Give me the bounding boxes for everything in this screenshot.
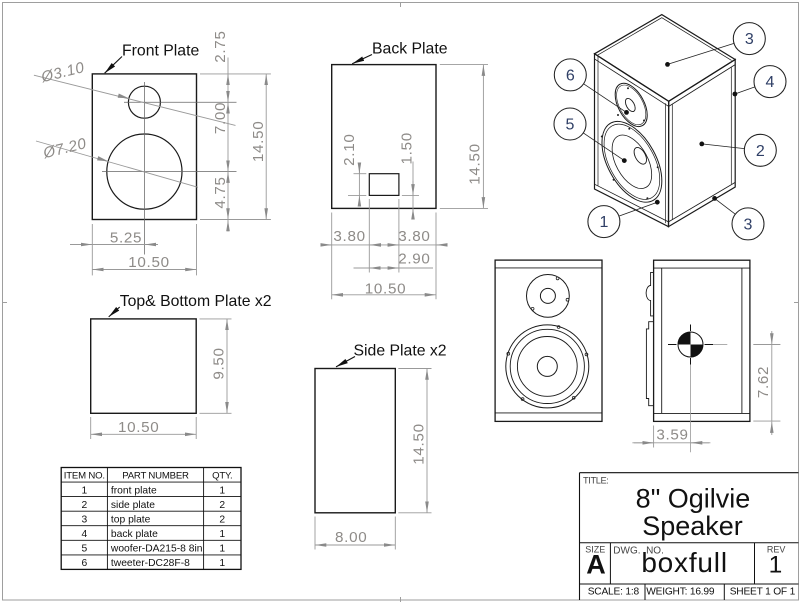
svg-text:9.50: 9.50 (210, 347, 227, 379)
svg-text:1: 1 (769, 552, 783, 579)
svg-text:1: 1 (219, 485, 225, 496)
svg-text:14.50: 14.50 (410, 423, 427, 465)
svg-text:3: 3 (744, 217, 753, 234)
svg-text:WEIGHT: 16.99: WEIGHT: 16.99 (646, 587, 715, 598)
svg-text:SHEET 1 OF 1: SHEET 1 OF 1 (730, 587, 796, 598)
svg-text:Speaker: Speaker (642, 511, 743, 541)
svg-text:14.50: 14.50 (250, 121, 267, 163)
svg-text:6: 6 (566, 68, 575, 85)
svg-text:PART NUMBER: PART NUMBER (122, 471, 189, 482)
svg-text:5.25: 5.25 (110, 230, 142, 247)
svg-text:2: 2 (219, 514, 225, 525)
svg-text:1.50: 1.50 (398, 132, 415, 164)
svg-text:4: 4 (766, 74, 775, 91)
svg-text:Back Plate: Back Plate (372, 41, 448, 58)
svg-text:5: 5 (82, 544, 88, 555)
svg-text:4: 4 (82, 529, 88, 540)
svg-text:8" Ogilvie: 8" Ogilvie (636, 484, 751, 514)
svg-text:Side Plate x2: Side Plate x2 (354, 343, 447, 360)
svg-text:10.50: 10.50 (365, 281, 407, 298)
svg-text:2.90: 2.90 (398, 251, 430, 268)
svg-text:2.75: 2.75 (212, 30, 229, 62)
svg-text:1: 1 (219, 529, 225, 540)
svg-text:5: 5 (566, 117, 575, 134)
svg-text:2.10: 2.10 (341, 134, 358, 166)
svg-text:ITEM NO.: ITEM NO. (64, 471, 105, 482)
svg-text:3.80: 3.80 (398, 228, 430, 245)
svg-text:front plate: front plate (111, 485, 157, 496)
svg-text:boxfull: boxfull (641, 547, 728, 578)
svg-text:14.50: 14.50 (466, 143, 483, 185)
svg-text:2: 2 (219, 500, 225, 511)
svg-text:1: 1 (82, 485, 88, 496)
svg-text:7.62: 7.62 (755, 366, 772, 398)
svg-text:1: 1 (219, 558, 225, 569)
svg-text:SCALE: 1:8: SCALE: 1:8 (588, 587, 640, 598)
svg-text:8.00: 8.00 (335, 529, 367, 546)
svg-text:4.75: 4.75 (212, 176, 229, 208)
svg-text:A: A (586, 550, 606, 580)
svg-text:top plate: top plate (111, 514, 151, 525)
svg-text:woofer-DA215-8 8in: woofer-DA215-8 8in (110, 544, 203, 555)
svg-text:6: 6 (82, 558, 88, 569)
svg-text:2: 2 (756, 143, 765, 160)
svg-text:2: 2 (82, 500, 88, 511)
svg-text:3.59: 3.59 (656, 427, 688, 444)
svg-text:TITLE:: TITLE: (583, 476, 609, 486)
svg-text:10.50: 10.50 (118, 419, 160, 436)
svg-text:side plate: side plate (111, 500, 155, 511)
svg-text:3.80: 3.80 (333, 228, 365, 245)
svg-text:10.50: 10.50 (128, 254, 170, 271)
svg-text:Top& Bottom Plate x2: Top& Bottom Plate x2 (120, 293, 272, 310)
svg-text:3: 3 (82, 514, 88, 525)
svg-text:back plate: back plate (111, 529, 158, 540)
svg-text:Front Plate: Front Plate (122, 43, 199, 60)
svg-text:3: 3 (745, 31, 754, 48)
svg-text:tweeter-DC28F-8: tweeter-DC28F-8 (111, 558, 190, 569)
svg-text:1: 1 (219, 544, 225, 555)
svg-text:1: 1 (599, 214, 608, 231)
svg-text:QTY.: QTY. (212, 471, 232, 482)
svg-text:7.00: 7.00 (212, 102, 229, 134)
